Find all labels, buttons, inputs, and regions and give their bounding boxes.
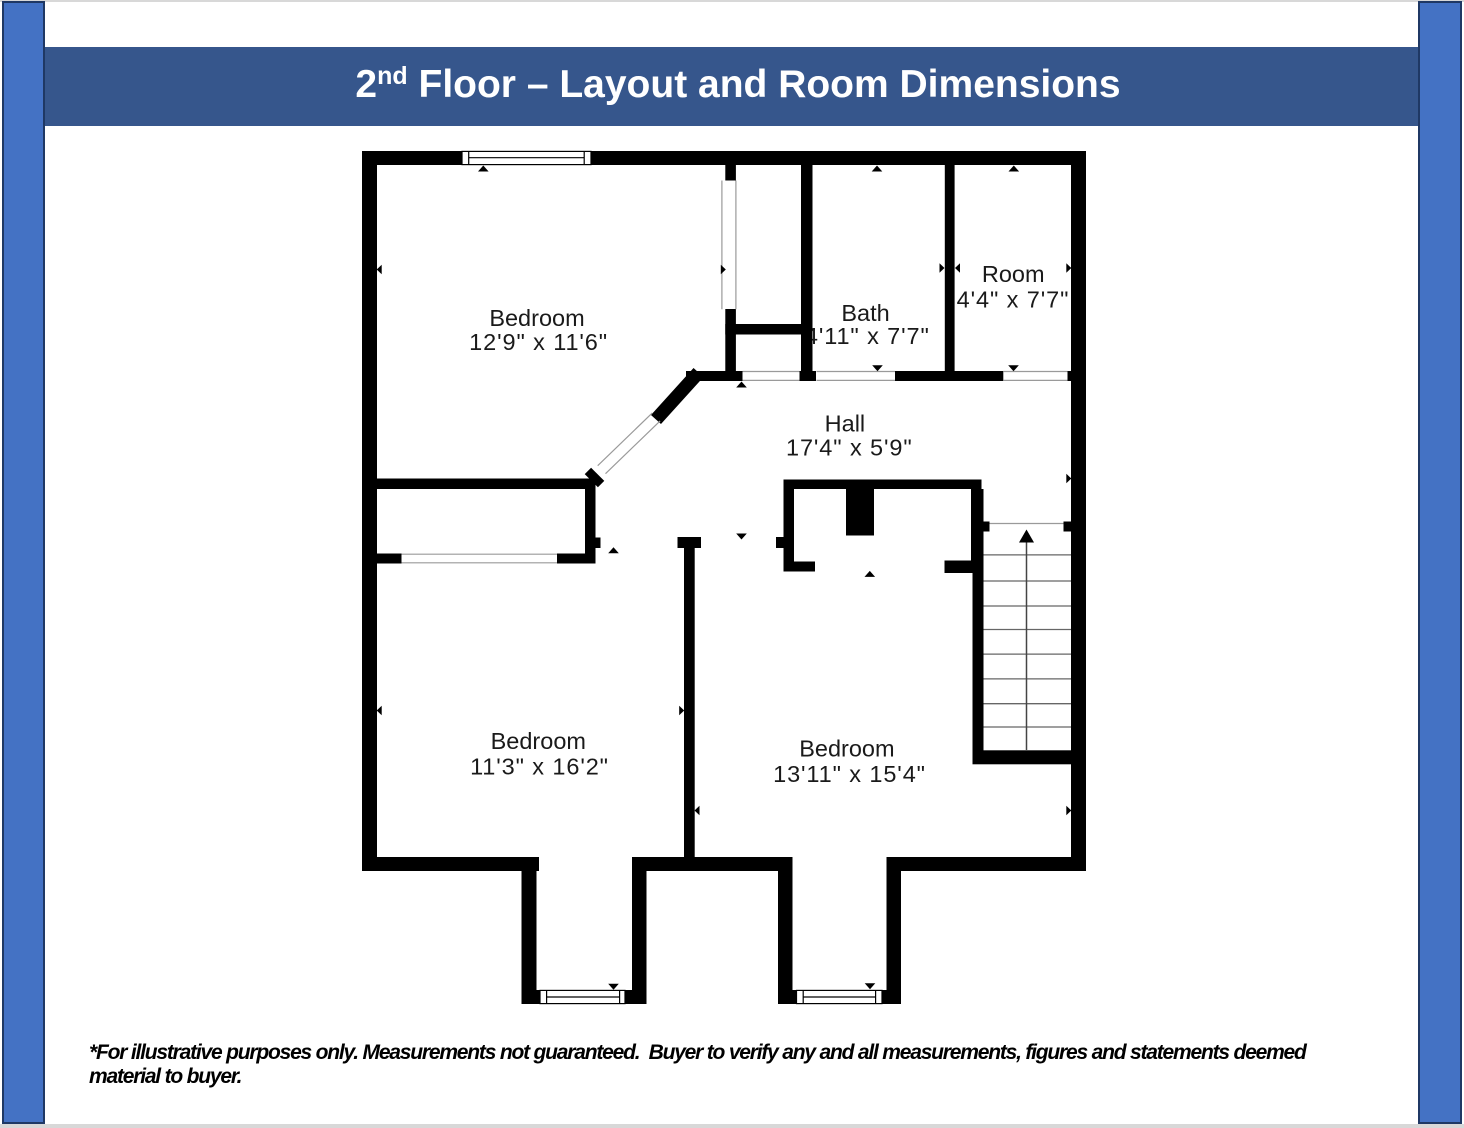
svg-text:Bedroom: Bedroom — [799, 736, 894, 762]
svg-text:Room: Room — [982, 261, 1045, 287]
svg-text:Hall: Hall — [825, 411, 865, 437]
svg-text:11'3" x 16'2": 11'3" x 16'2" — [470, 754, 609, 780]
svg-text:Bedroom: Bedroom — [491, 728, 586, 754]
svg-text:Bath: Bath — [841, 300, 889, 326]
svg-text:4'11" x 7'7": 4'11" x 7'7" — [805, 323, 930, 349]
svg-text:Bedroom: Bedroom — [489, 305, 584, 331]
svg-text:12'9" x 11'6": 12'9" x 11'6" — [469, 329, 608, 355]
svg-text:4'4" x 7'7": 4'4" x 7'7" — [957, 286, 1070, 312]
svg-text:13'11" x 15'4": 13'11" x 15'4" — [773, 761, 926, 787]
svg-text:17'4" x 5'9": 17'4" x 5'9" — [786, 435, 913, 461]
